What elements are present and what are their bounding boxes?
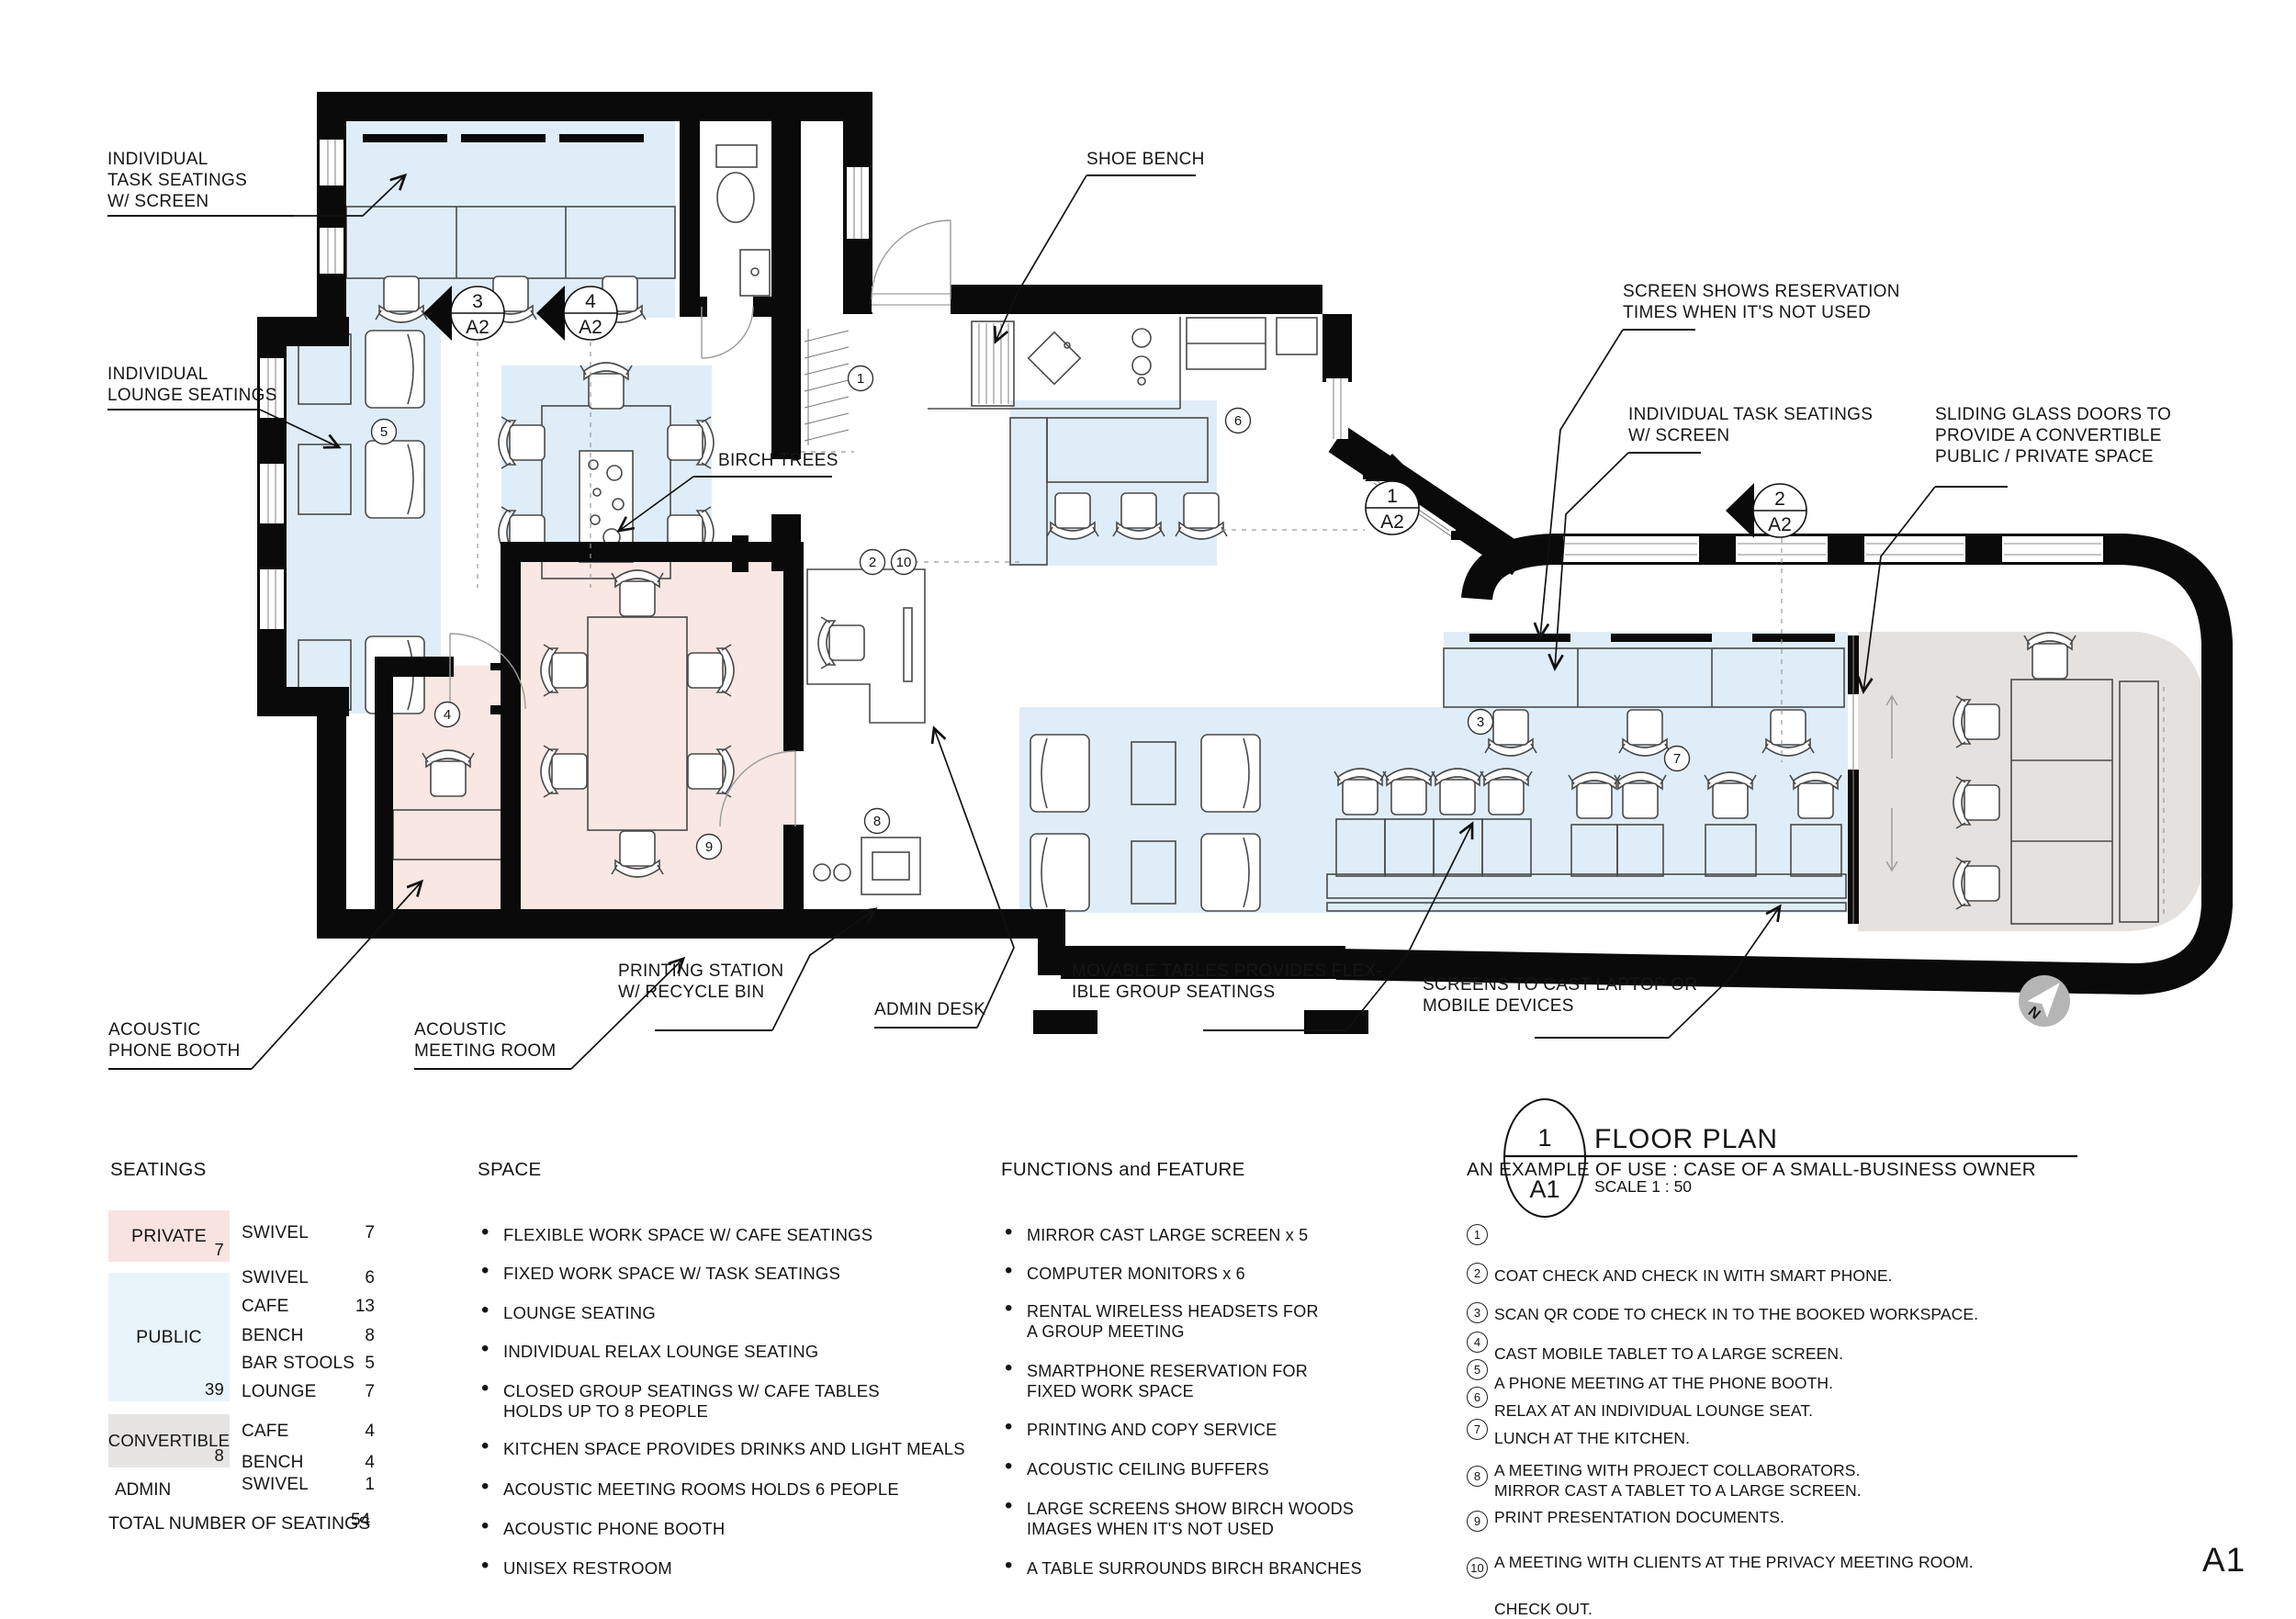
drawing-title: FLOOR PLAN [1594,1124,1778,1154]
group-total: 7 [215,1240,225,1260]
plan-step-6: 6 [1234,413,1242,429]
seat-row-count: 4 [303,1422,375,1442]
function-item: ACOUSTIC CEILING BUFFERS [1003,1459,1269,1479]
zone-private-meeting [1858,632,2204,931]
label-shoe-bench: SHOE BENCH [1086,149,1205,170]
example-item: 10 CHECK OUT. [1467,1558,1593,1619]
group-total: 39 [205,1379,224,1400]
seat-row-type: BENCH [242,1326,304,1346]
seat-row-count: 1 [303,1475,375,1495]
seat-row-count: 13 [303,1297,375,1317]
example-title: AN EXAMPLE OF USE : CASE OF A SMALL-BUSI… [1467,1159,2036,1181]
label-screen-reservation: SCREEN SHOWS RESERVATION TIMES WHEN IT'S… [1623,281,1900,323]
restroom-door [702,307,753,358]
plan-step-8: 8 [873,814,881,829]
seatings-title: SEATINGS [110,1159,207,1181]
space-item: FLEXIBLE WORK SPACE W/ CAFE SEATINGS [479,1225,872,1245]
function-item: A TABLE SURROUNDS BIRCH BRANCHES [1003,1558,1362,1579]
example-step-number: 7 [1467,1419,1488,1440]
floor-plan-sheet: 3 A2 4 A2 1 A2 2 A2 1 2 10 3 4 5 6 7 8 9 [0,0,2296,1619]
space-item: LOUNGE SEATING [479,1303,656,1323]
label-sliding-doors: SLIDING GLASS DOORS TO PROVIDE A CONVERT… [1935,404,2171,467]
sheet-number: A1 [2202,1541,2245,1580]
example-step-number: 3 [1467,1302,1488,1323]
plan-step-7: 7 [1673,751,1681,767]
plan-step-1: 1 [857,371,864,387]
seatings-total-count: 54 [351,1511,370,1531]
seatings-group-public: PUBLIC 39 [108,1273,230,1401]
seat-row-count: 6 [303,1268,375,1288]
group-name: PRIVATE [131,1226,207,1247]
function-item: MIRROR CAST LARGE SCREEN x 5 [1003,1225,1308,1245]
seat-row-count: 8 [303,1326,375,1346]
seatings-group-convertible: CONVERTIBLE 8 [108,1414,230,1467]
seatings-group-admin: ADMIN [115,1480,171,1501]
section-marker-2-a2: 2 A2 [1726,483,1806,538]
marker-sheet: A2 [466,317,490,338]
example-step-number: 8 [1467,1466,1488,1487]
seat-row-count: 7 [303,1382,375,1402]
space-item: INDIVIDUAL RELAX LOUNGE SEATING [479,1342,818,1362]
screen-bar [1469,634,1570,642]
plan-step-2: 2 [869,555,876,570]
label-birch-trees: BIRCH TREES [718,450,838,471]
screen-bar [1611,634,1712,642]
seat-row-count: 4 [303,1453,375,1473]
label-screens-cast: SCREENS TO CAST LAPTOP OR MOBILE DEVICES [1423,974,1697,1017]
label-task-seatings-left: INDIVIDUAL TASK SEATINGS W/ SCREEN [107,149,247,212]
title-block: 1 A1 FLOOR PLAN SCALE 1 : 50 [1504,1099,2077,1217]
marker-number: 4 [585,291,596,312]
screen-bar [461,134,546,142]
example-step-number: 6 [1467,1387,1488,1408]
zone-kitchen-bar [1010,400,1217,566]
coat-check-hatch [805,329,849,445]
plan-step-9: 9 [705,839,713,855]
seat-row-type: SWIVEL [242,1223,309,1243]
example-step-number: 10 [1467,1557,1488,1579]
screen-bar [363,134,447,142]
space-item: UNISEX RESTROOM [479,1558,672,1579]
label-admin-desk: ADMIN DESK [874,999,985,1020]
label-movable-tables: MOVABLE TABLES PROVIDES FLEX- IBLE GROUP… [1072,961,1382,1003]
plan-step-10: 10 [896,555,912,570]
function-item: SMARTPHONE RESERVATION FOR FIXED WORK SP… [1003,1361,1308,1401]
space-item: ACOUSTIC PHONE BOOTH [479,1519,725,1539]
function-item: RENTAL WIRELESS HEADSETS FOR A GROUP MEE… [1003,1301,1319,1342]
seat-row-type: SWIVEL [242,1268,309,1288]
space-item: ACOUSTIC MEETING ROOMS HOLDS 6 PEOPLE [479,1479,899,1500]
group-name: PUBLIC [136,1327,202,1348]
group-total: 8 [215,1445,225,1466]
marker-sheet: A2 [579,317,602,338]
plan-step-4: 4 [444,707,451,723]
seat-row-count: 5 [303,1354,375,1374]
seat-row-type: BENCH [242,1453,304,1473]
drawing-number: 1 [1537,1124,1551,1152]
example-step-number: 9 [1467,1511,1488,1532]
screen-bar [559,134,644,142]
label-printing-station: PRINTING STATION W/ RECYCLE BIN [618,961,783,1003]
marker-number: 3 [472,291,483,312]
example-step-number: 5 [1467,1359,1488,1380]
example-step-text: CHECK OUT. [1494,1600,1593,1618]
function-item: PRINTING AND COPY SERVICE [1003,1420,1277,1440]
marker-sheet: A2 [1380,512,1404,533]
function-item: LARGE SCREENS SHOW BIRCH WOODS IMAGES WH… [1003,1499,1354,1539]
label-phone-booth: ACOUSTIC PHONE BOOTH [108,1019,241,1062]
seat-row-type: CAFE [242,1297,288,1317]
label-task-seatings-right: INDIVIDUAL TASK SEATINGS W/ SCREEN [1628,404,1873,446]
group-name: CONVERTIBLE [108,1431,230,1451]
screen-bar [1752,634,1835,642]
door-handle [490,663,501,670]
seat-row-type: SWIVEL [242,1475,309,1495]
seat-row-type: CAFE [242,1422,288,1442]
example-step-number: 1 [1467,1224,1488,1245]
marker-number: 2 [1774,489,1785,510]
example-step-number: 2 [1467,1263,1488,1284]
seatings-total-label: TOTAL NUMBER OF SEATINGS [108,1513,370,1535]
door-handle [490,705,503,714]
seatings-group-private: PRIVATE 7 [108,1210,230,1262]
function-item: COMPUTER MONITORS x 6 [1003,1264,1245,1284]
space-item: CLOSED GROUP SEATINGS W/ CAFE TABLES HOL… [479,1381,880,1422]
label-meeting-room: ACOUSTIC MEETING ROOM [414,1019,557,1062]
label-lounge-seatings: INDIVIDUAL LOUNGE SEATINGS [107,364,277,406]
space-item: KITCHEN SPACE PROVIDES DRINKS AND LIGHT … [479,1439,965,1459]
plan-step-3: 3 [1477,714,1484,730]
seat-row-count: 7 [303,1223,375,1243]
marker-number: 1 [1387,486,1398,507]
marker-sheet: A2 [1768,514,1792,535]
example-step-number: 4 [1467,1332,1488,1353]
plan-step-5: 5 [380,424,388,440]
functions-title: FUNCTIONS and FEATURE [1001,1159,1245,1181]
space-title: SPACE [478,1159,541,1181]
space-item: FIXED WORK SPACE W/ TASK SEATINGS [479,1264,840,1284]
